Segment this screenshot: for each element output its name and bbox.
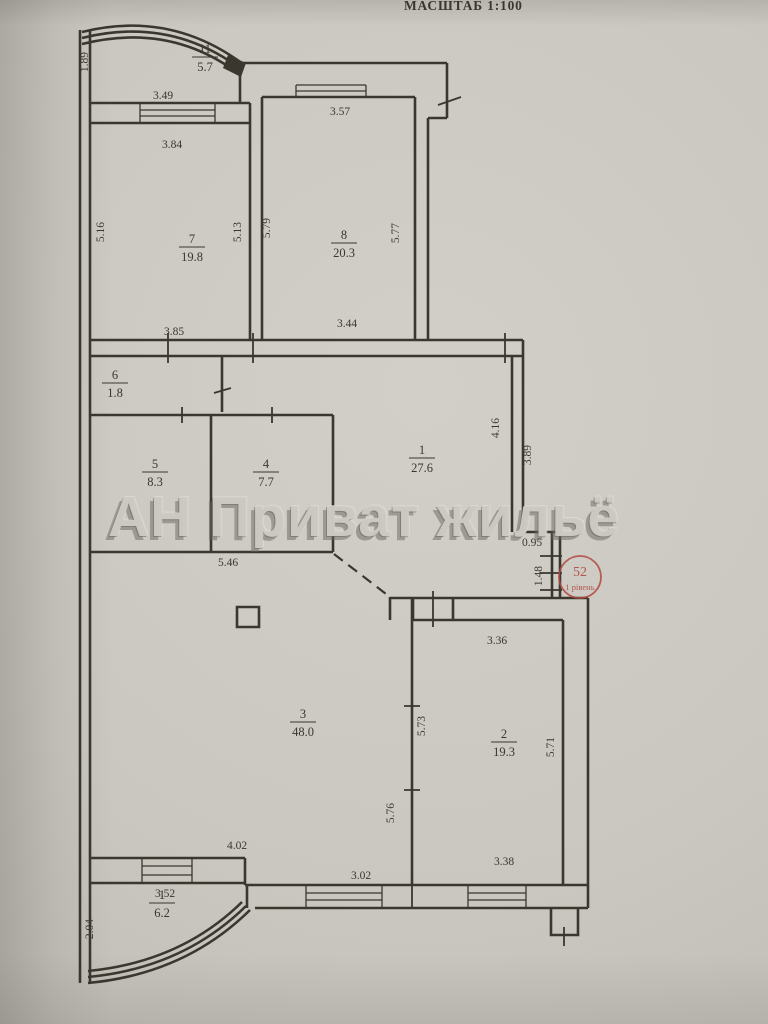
dimension-label: 5.73 (416, 716, 428, 736)
room-number-label: 1 (419, 443, 425, 457)
room-number-label: 6 (112, 368, 118, 382)
room-area-label: 1.8 (107, 386, 123, 400)
dimension-label: 1.48 (533, 566, 545, 586)
room-area-label: 27.6 (411, 461, 433, 475)
dimension-label: 3.89 (522, 445, 534, 465)
dimension-label: 5.16 (95, 222, 107, 242)
dimension-label: 3.57 (330, 106, 350, 118)
dimension-label: 1.89 (79, 52, 91, 72)
dimension-label: 3.84 (162, 139, 182, 151)
dimension-label: 5.77 (390, 223, 402, 243)
room-area-label: 19.3 (493, 745, 515, 759)
dimension-label: 3.49 (153, 90, 173, 102)
dimension-label: 4.16 (490, 418, 502, 438)
dimension-label: 3.02 (351, 870, 371, 882)
scale-title: МАСШТАБ 1:100 (404, 0, 523, 14)
room-area-label: 19.8 (181, 250, 203, 264)
open-plan-dashed-line (334, 554, 390, 597)
dimension-label: 4.02 (227, 840, 247, 852)
dimension-label: 3.44 (337, 318, 357, 330)
room-number-label: 11 (199, 42, 211, 56)
dimension-label: 5.71 (545, 737, 557, 757)
room-area-label: 5.7 (197, 60, 213, 74)
room-number-label: 4 (263, 457, 270, 471)
room-area-label: 20.3 (333, 246, 355, 260)
dimension-label: 5.13 (232, 222, 244, 242)
dimension-label: 3.36 (487, 635, 507, 647)
dimension-label: 5.79 (261, 218, 273, 238)
dimension-label: 5.46 (218, 557, 238, 569)
room-number-label: 7 (189, 232, 195, 246)
level-stamp: 52 1 рівень (559, 556, 601, 598)
stamp-number: 52 (573, 565, 587, 580)
stamp-level: 1 рівень (565, 582, 594, 592)
dimension-label: 3.38 (494, 856, 514, 868)
room-area-label: 6.2 (154, 906, 170, 920)
dimension-label: 2.04 (84, 919, 96, 939)
room-number-label: 3 (300, 707, 306, 721)
room-number-label: 8 (341, 228, 347, 242)
room-number-label: 2 (501, 727, 507, 741)
agency-watermark: АН Приват жильё (108, 484, 620, 550)
room-number-label: 5 (152, 457, 158, 471)
room-number-label: 1 (159, 888, 165, 902)
room-area-label: 48.0 (292, 725, 314, 739)
photo-background: 52 1 рівень 1.893.493.843.575.165.135.79… (0, 0, 768, 1024)
dimension-label: 5.76 (385, 803, 397, 823)
dimension-label: 3.85 (164, 326, 184, 338)
